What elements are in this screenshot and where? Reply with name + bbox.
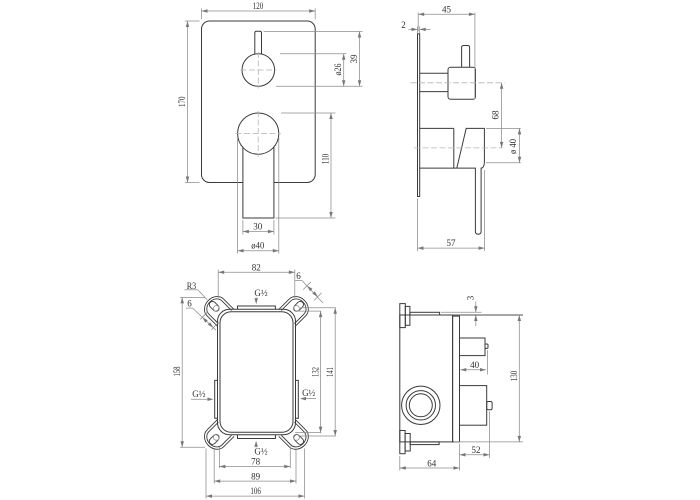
svg-text:39: 39 (349, 54, 359, 64)
svg-text:6: 6 (187, 299, 192, 309)
svg-text:G½: G½ (192, 389, 205, 399)
svg-text:ø26: ø26 (333, 63, 343, 75)
svg-text:64: 64 (427, 458, 437, 468)
svg-text:170: 170 (177, 96, 187, 107)
svg-text:ø 40: ø 40 (508, 139, 518, 154)
svg-text:3: 3 (465, 295, 475, 300)
svg-text:6: 6 (296, 271, 301, 281)
svg-text:30: 30 (253, 221, 263, 231)
svg-text:158: 158 (172, 366, 182, 376)
svg-text:52: 52 (472, 445, 481, 455)
svg-text:57: 57 (447, 238, 457, 248)
svg-text:68: 68 (491, 110, 501, 120)
svg-text:132: 132 (310, 367, 320, 377)
svg-text:82: 82 (252, 262, 261, 272)
svg-text:40: 40 (470, 360, 480, 370)
svg-text:R3: R3 (187, 281, 197, 291)
svg-text:78: 78 (251, 456, 261, 466)
svg-text:45: 45 (442, 4, 452, 14)
svg-text:106: 106 (250, 486, 261, 496)
svg-text:G½: G½ (254, 447, 267, 457)
svg-text:G½: G½ (254, 288, 267, 298)
svg-text:ø40: ø40 (251, 240, 264, 250)
svg-text:141: 141 (325, 367, 335, 377)
svg-text:2: 2 (401, 20, 406, 30)
svg-text:G½: G½ (302, 388, 315, 398)
svg-text:120: 120 (253, 1, 264, 11)
svg-text:130: 130 (509, 370, 519, 381)
svg-text:89: 89 (251, 471, 261, 481)
svg-text:110: 110 (321, 153, 331, 164)
